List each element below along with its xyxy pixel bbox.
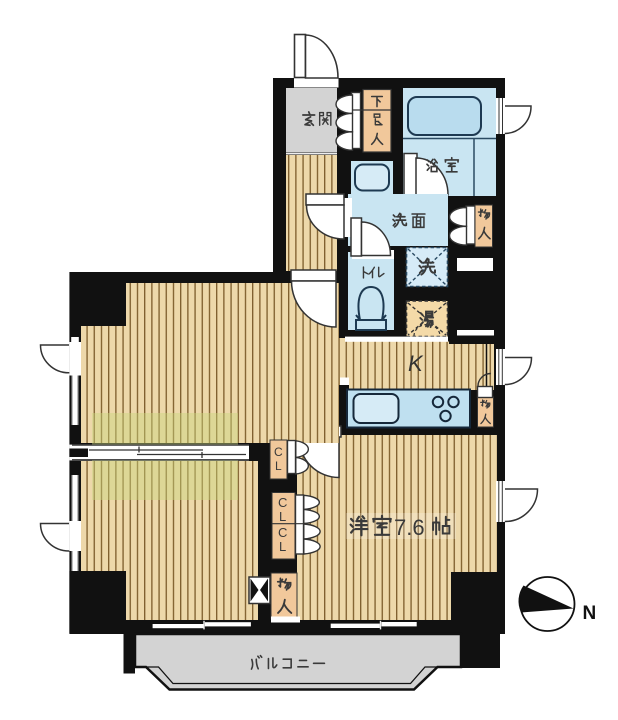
svg-text:7.6: 7.6 — [394, 515, 425, 540]
svg-text:C: C — [274, 445, 283, 459]
svg-text:K: K — [408, 351, 424, 376]
svg-text:L: L — [279, 509, 286, 524]
svg-text:C: C — [278, 525, 287, 540]
svg-text:L: L — [279, 539, 286, 554]
svg-text:N: N — [583, 603, 597, 624]
svg-text:L: L — [275, 459, 282, 473]
svg-text:C: C — [278, 495, 287, 510]
